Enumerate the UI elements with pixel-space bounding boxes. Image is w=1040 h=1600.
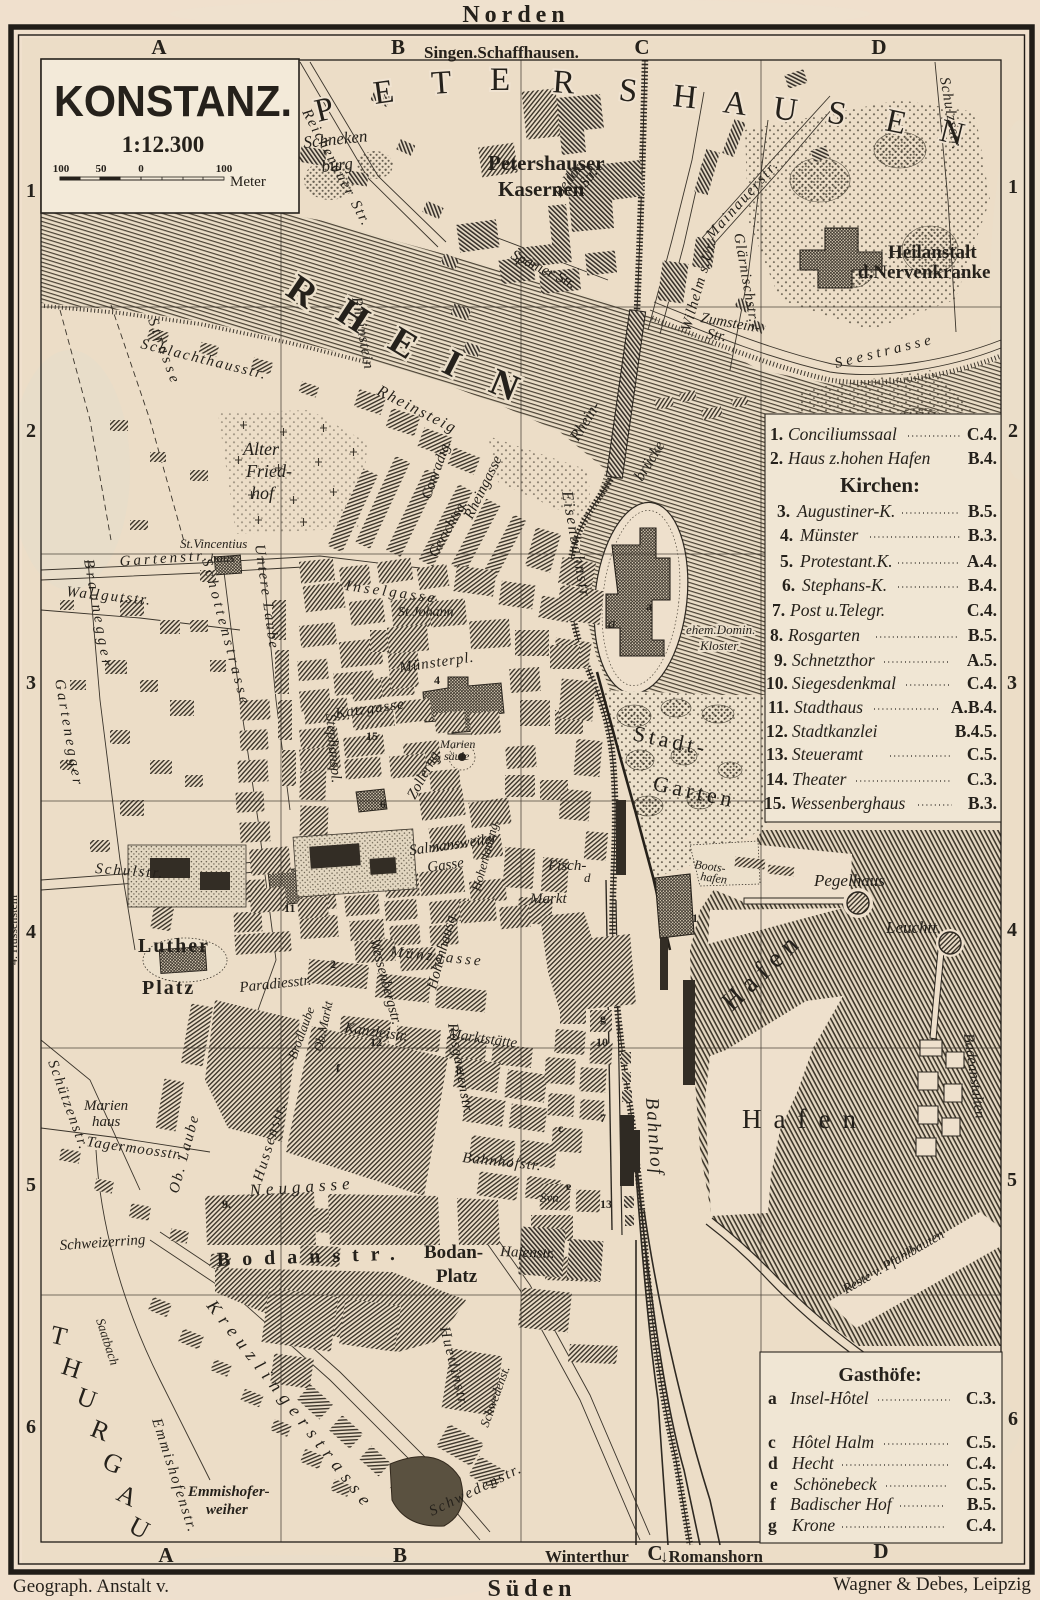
svg-text:Marien: Marien [83, 1098, 128, 1114]
svg-text:g: g [768, 1515, 777, 1535]
svg-text:↓Romanshorn: ↓Romanshorn [660, 1547, 764, 1566]
svg-text:C.4.: C.4. [967, 600, 997, 620]
svg-text:B.3.: B.3. [968, 793, 997, 813]
svg-text:e: e [566, 1179, 572, 1193]
svg-text:Geograph. Anstalt v.: Geograph. Anstalt v. [13, 1576, 169, 1597]
svg-text:C.4.: C.4. [966, 1453, 996, 1473]
svg-text:8.: 8. [770, 625, 783, 645]
svg-text:St.Johann: St.Johann [398, 605, 454, 620]
svg-text:haus: haus [92, 1114, 121, 1130]
svg-text:Krone: Krone [791, 1515, 835, 1535]
svg-text:3: 3 [26, 672, 36, 694]
svg-text:E: E [490, 62, 510, 98]
svg-text:Alter: Alter [242, 439, 280, 459]
svg-text:Syn.: Syn. [540, 1190, 562, 1205]
svg-text:Meter: Meter [230, 174, 266, 190]
svg-text:A.B.4.: A.B.4. [951, 697, 997, 717]
svg-text:Markt: Markt [529, 891, 567, 907]
svg-text:Emmishofer-: Emmishofer- [187, 1484, 270, 1500]
svg-text:Platz: Platz [436, 1266, 478, 1287]
svg-text:d: d [768, 1453, 778, 1473]
svg-text:Pegelhaus: Pegelhaus [813, 871, 885, 890]
svg-text:B.3.: B.3. [968, 525, 997, 545]
svg-text:hof: hof [251, 483, 277, 503]
svg-text:Hafen: Hafen [742, 1104, 868, 1134]
svg-text:a: a [646, 599, 652, 613]
svg-text:1:12.300: 1:12.300 [122, 132, 204, 157]
svg-text:Steueramt: Steueramt [792, 744, 864, 764]
svg-text:weiher: weiher [206, 1502, 248, 1518]
svg-text:4. Hussenstein: 4. Hussenstein [6, 895, 20, 965]
svg-text:B.5.: B.5. [968, 501, 997, 521]
svg-text:a: a [608, 616, 616, 632]
svg-text:Hôtel Halm: Hôtel Halm [791, 1432, 874, 1452]
svg-text:d.Nervenkranke: d.Nervenkranke [858, 262, 990, 283]
svg-text:4: 4 [434, 673, 440, 687]
svg-text:4.: 4. [780, 525, 793, 545]
svg-text:5.: 5. [780, 551, 793, 571]
svg-text:f: f [770, 1494, 776, 1514]
svg-text:Kirchen:: Kirchen: [840, 473, 920, 497]
svg-text:0: 0 [138, 163, 144, 175]
svg-text:S: S [617, 72, 639, 110]
svg-text:Stephans-K.: Stephans-K. [802, 575, 887, 595]
svg-text:100: 100 [53, 163, 70, 175]
svg-text:B.5.: B.5. [967, 1494, 996, 1514]
svg-text:g: g [600, 1011, 606, 1025]
svg-text:C.4.: C.4. [967, 424, 997, 444]
svg-text:B.4.: B.4. [968, 448, 997, 468]
svg-text:12.: 12. [766, 721, 788, 741]
svg-text:C.5.: C.5. [966, 1474, 996, 1494]
svg-text:8: 8 [456, 1063, 462, 1077]
svg-text:11: 11 [284, 901, 295, 915]
svg-text:2.: 2. [770, 448, 783, 468]
svg-text:5: 5 [26, 1174, 36, 1196]
svg-text:Theater: Theater [792, 769, 847, 789]
svg-text:T: T [430, 65, 453, 102]
svg-text:Wagner & Debes, Leipzig: Wagner & Debes, Leipzig [833, 1574, 1031, 1595]
svg-text:9.: 9. [774, 650, 787, 670]
svg-text:Winterthur: Winterthur [545, 1547, 629, 1566]
svg-text:Rosgarten: Rosgarten [787, 625, 860, 645]
svg-text:Singen.Schaffhausen.: Singen.Schaffhausen. [424, 43, 579, 62]
svg-text:Post u.Telegr.: Post u.Telegr. [789, 600, 885, 620]
svg-text:6: 6 [26, 1416, 36, 1438]
svg-text:Str.: Str. [705, 326, 727, 345]
svg-text:6: 6 [380, 797, 386, 811]
svg-text:Münster: Münster [799, 525, 859, 545]
svg-text:haus: haus [210, 550, 235, 565]
svg-text:15: 15 [366, 729, 378, 743]
svg-text:c: c [768, 1432, 776, 1452]
svg-text:Siegesdenkmal: Siegesdenkmal [792, 673, 896, 693]
svg-text:4: 4 [1007, 919, 1017, 941]
svg-text:A.4.: A.4. [967, 551, 997, 571]
svg-text:A.5.: A.5. [967, 650, 997, 670]
svg-text:11.: 11. [768, 697, 789, 717]
svg-text:Heilanstalt: Heilanstalt [888, 242, 977, 263]
svg-text:3.: 3. [777, 501, 790, 521]
svg-text:Badischer Hof: Badischer Hof [790, 1494, 894, 1514]
svg-text:1: 1 [1008, 176, 1018, 198]
svg-text:d: d [584, 870, 591, 885]
svg-text:13: 13 [600, 1197, 612, 1211]
svg-text:Conciliumssaal: Conciliumssaal [788, 424, 897, 444]
svg-text:6: 6 [1008, 1408, 1018, 1430]
svg-text:R: R [551, 64, 575, 101]
svg-text:B: B [393, 1543, 407, 1567]
svg-text:1: 1 [692, 911, 698, 925]
svg-text:B.4.5.: B.4.5. [955, 721, 997, 741]
svg-text:Wessenberghaus: Wessenberghaus [790, 793, 906, 813]
svg-text:15.: 15. [764, 793, 786, 813]
svg-text:D: D [871, 35, 886, 59]
svg-text:e: e [770, 1474, 778, 1494]
svg-text:C.3.: C.3. [967, 769, 997, 789]
svg-text:Stadtkanzlei: Stadtkanzlei [792, 721, 878, 741]
svg-text:A: A [158, 1543, 174, 1567]
svg-text:a: a [768, 1388, 777, 1408]
svg-text:2: 2 [26, 420, 36, 442]
svg-text:Platz: Platz [142, 977, 195, 999]
svg-text:13.: 13. [766, 744, 788, 764]
svg-text:Schnetzthor: Schnetzthor [792, 650, 875, 670]
svg-text:2: 2 [330, 957, 336, 971]
svg-text:B.4.: B.4. [968, 575, 997, 595]
svg-text:H: H [671, 78, 698, 116]
svg-text:10: 10 [596, 1035, 608, 1049]
svg-text:50: 50 [96, 163, 108, 175]
svg-text:9.: 9. [222, 1197, 231, 1211]
svg-text:C.5.: C.5. [966, 1432, 996, 1452]
svg-text:Protestant.K.: Protestant.K. [799, 551, 893, 571]
svg-text:Fried-: Fried- [245, 461, 292, 481]
svg-text:B: B [391, 35, 405, 59]
svg-text:C.4.: C.4. [967, 673, 997, 693]
svg-text:Augustiner-K.: Augustiner-K. [796, 501, 895, 521]
svg-text:1.: 1. [770, 424, 783, 444]
svg-text:Insel-Hôtel: Insel-Hôtel [789, 1388, 869, 1408]
svg-text:14.: 14. [766, 769, 788, 789]
svg-text:Kloster: Kloster [699, 638, 739, 653]
svg-text:A: A [151, 35, 167, 59]
svg-text:Schönebeck: Schönebeck [794, 1474, 878, 1494]
svg-text:Fisch-: Fisch- [547, 858, 586, 874]
svg-text:Süden: Süden [487, 1576, 576, 1600]
svg-text:C: C [634, 35, 649, 59]
svg-text:7: 7 [600, 1111, 606, 1125]
svg-text:C.4.: C.4. [966, 1515, 996, 1535]
svg-text:Hecht: Hecht [791, 1453, 835, 1473]
svg-text:Bodan-: Bodan- [424, 1242, 483, 1263]
svg-text:C.5.: C.5. [967, 744, 997, 764]
svg-text:Stadthaus: Stadthaus [794, 697, 863, 717]
svg-text:B.5.: B.5. [968, 625, 997, 645]
svg-text:Leuchtt.: Leuchtt. [885, 918, 941, 937]
svg-text:7.: 7. [772, 600, 785, 620]
svg-text:4: 4 [26, 921, 36, 943]
svg-text:10.: 10. [766, 673, 788, 693]
svg-text:3: 3 [1007, 672, 1017, 694]
svg-text:Hafenstr.: Hafenstr. [499, 1244, 555, 1262]
svg-text:Haus z.hohen Hafen: Haus z.hohen Hafen [787, 448, 931, 468]
svg-text:C.3.: C.3. [966, 1388, 996, 1408]
svg-text:Norden: Norden [462, 2, 569, 28]
svg-text:säule: säule [444, 749, 470, 763]
svg-text:KONSTANZ.: KONSTANZ. [54, 77, 292, 126]
svg-text:12: 12 [370, 1035, 382, 1049]
svg-text:5: 5 [1007, 1169, 1017, 1191]
svg-text:Luther: Luther [138, 935, 210, 957]
svg-text:St.Vincentius: St.Vincentius [180, 536, 247, 551]
svg-text:2: 2 [1008, 420, 1018, 442]
svg-text:c: c [558, 1121, 564, 1135]
svg-text:1: 1 [26, 180, 36, 202]
svg-text:Gasthöfe:: Gasthöfe: [838, 1364, 921, 1386]
svg-text:6.: 6. [782, 575, 795, 595]
svg-text:ehem.Domin.: ehem.Domin. [686, 622, 755, 637]
